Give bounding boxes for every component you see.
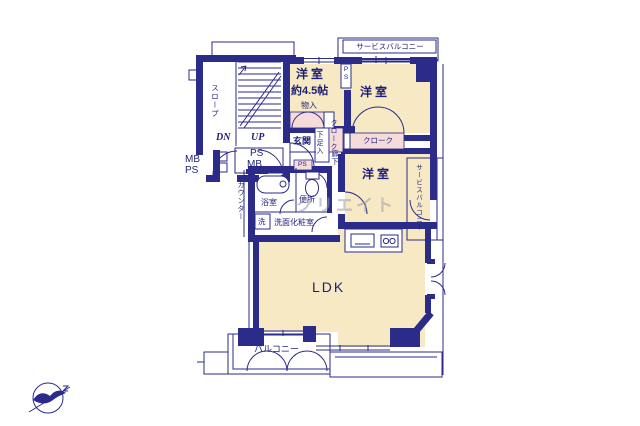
- service-balcony-right-label: サービスバルコニー: [414, 164, 421, 232]
- room-label-western-c: 洋室: [362, 168, 392, 180]
- service-balcony-top-label: サービスバルコニー: [348, 43, 432, 51]
- entrance-label: 玄関: [293, 137, 311, 146]
- pipe-shaft-hall-label: PS: [298, 162, 307, 169]
- room-size-western-a: 約4.5帖: [291, 86, 328, 97]
- balcony-label: バルコニー: [254, 345, 299, 354]
- slope-label: スロープ: [211, 84, 219, 118]
- pipe-shaft-top-label: PS: [342, 66, 349, 82]
- cloak-b-label: クローク: [356, 137, 400, 145]
- hallway-label: 廊下: [331, 150, 338, 166]
- floor-plan: 洋室 約4.5帖 物入 PS 洋室 サービスバルコニー クローク 玄関 下足入 …: [0, 0, 640, 426]
- laundry-label: 洗: [258, 218, 266, 226]
- meter-box-label: MB: [185, 155, 200, 165]
- storage-label: 物入: [301, 102, 317, 110]
- washroom-label: 洗面化粧室: [274, 219, 314, 227]
- ldk-label: LDK: [312, 280, 345, 294]
- room-label-western-a: 洋室: [296, 68, 326, 80]
- room-label-western-b: 洋室: [360, 86, 390, 98]
- shaft-ps-label: PS: [250, 149, 263, 159]
- toilet-icon: [306, 172, 320, 197]
- meter-ps-label: PS: [185, 166, 198, 176]
- stairs-down-label: DN: [216, 133, 230, 143]
- kitchen-counter: [345, 229, 402, 252]
- bathroom-label: 浴室: [261, 199, 277, 207]
- north-compass-icon: [29, 383, 70, 413]
- shoe-cabinet-label: 下足入: [316, 131, 323, 155]
- cloak-hall-label: クローク: [330, 119, 337, 151]
- stairs-up-label: UP: [251, 133, 264, 143]
- counter-label: カウンター: [237, 181, 244, 221]
- shaft-mb-label: MB: [247, 160, 262, 170]
- watermark: クリエイト: [296, 197, 396, 214]
